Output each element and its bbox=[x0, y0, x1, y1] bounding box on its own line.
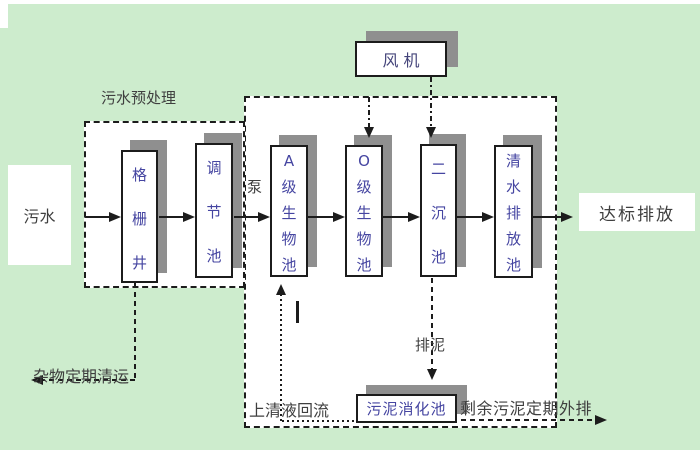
arrowhead-icon bbox=[258, 212, 270, 222]
arrowhead-up-icon bbox=[276, 284, 286, 295]
flow-arrow-regulating-to-a-tank bbox=[234, 216, 260, 218]
effluent-box: 达标排放 bbox=[579, 193, 695, 231]
flow-arrow-secondary-to-clearwater bbox=[457, 216, 484, 218]
regulating-tank-box: 调节池 bbox=[195, 143, 233, 278]
arrowhead-icon bbox=[561, 212, 573, 222]
pump-label: 泵 bbox=[247, 176, 262, 197]
supernatant-return-label: 上清液回流 bbox=[249, 397, 329, 421]
arrowhead-down-icon bbox=[364, 127, 374, 138]
influent-box: 污水 bbox=[8, 165, 71, 265]
arrowhead-icon bbox=[408, 212, 420, 222]
arrowhead-down-icon bbox=[427, 369, 437, 380]
arrowhead-down-icon bbox=[426, 127, 436, 138]
top-left-edge-patch bbox=[0, 0, 8, 28]
influent-label: 污水 bbox=[23, 203, 55, 227]
blower-label: 风 机 bbox=[382, 47, 419, 71]
air-line-to-secondary-tank bbox=[430, 77, 432, 128]
o-bio-tank-box: O级生物池 bbox=[345, 145, 383, 277]
sludge-discharge-label: 排泥 bbox=[415, 334, 445, 355]
arrowhead-icon bbox=[333, 212, 345, 222]
arrowhead-icon bbox=[109, 212, 121, 222]
top-edge-strip bbox=[0, 0, 700, 4]
flow-arrow-o-to-secondary bbox=[383, 216, 410, 218]
sludge-digester-label: 污泥消化池 bbox=[366, 398, 446, 419]
sludge-discharge-line bbox=[431, 278, 433, 370]
secondary-sedimentation-tank-box: 二沉池 bbox=[420, 144, 457, 277]
flow-arrow-gridwell-to-regulating bbox=[159, 216, 185, 218]
flow-arrow-influent-to-gridwell bbox=[85, 216, 111, 218]
pretreatment-group-label: 污水预处理 bbox=[101, 87, 176, 108]
a-bio-tank-box: A级生物池 bbox=[270, 145, 308, 277]
tick-mark bbox=[296, 301, 299, 323]
grid-well-box: 格栅井 bbox=[121, 150, 158, 283]
debris-removal-line-vertical bbox=[134, 283, 136, 380]
arrowhead-icon bbox=[595, 415, 607, 425]
clear-water-discharge-tank-box: 清水排放池 bbox=[494, 145, 533, 278]
air-line-to-o-tank bbox=[368, 97, 370, 128]
debris-removal-label: 杂物定期清运 bbox=[33, 363, 129, 387]
sludge-digester-box: 污泥消化池 bbox=[356, 394, 457, 423]
effluent-label: 达标排放 bbox=[599, 200, 675, 225]
flow-arrow-clearwater-to-effluent bbox=[533, 216, 562, 218]
excess-sludge-line bbox=[461, 419, 596, 421]
arrowhead-icon bbox=[183, 212, 195, 222]
blower-box: 风 机 bbox=[355, 41, 447, 77]
arrowhead-icon bbox=[482, 212, 494, 222]
excess-sludge-label: 剩余污泥定期外排 bbox=[460, 395, 592, 419]
flow-arrow-a-to-o-tank bbox=[308, 216, 335, 218]
